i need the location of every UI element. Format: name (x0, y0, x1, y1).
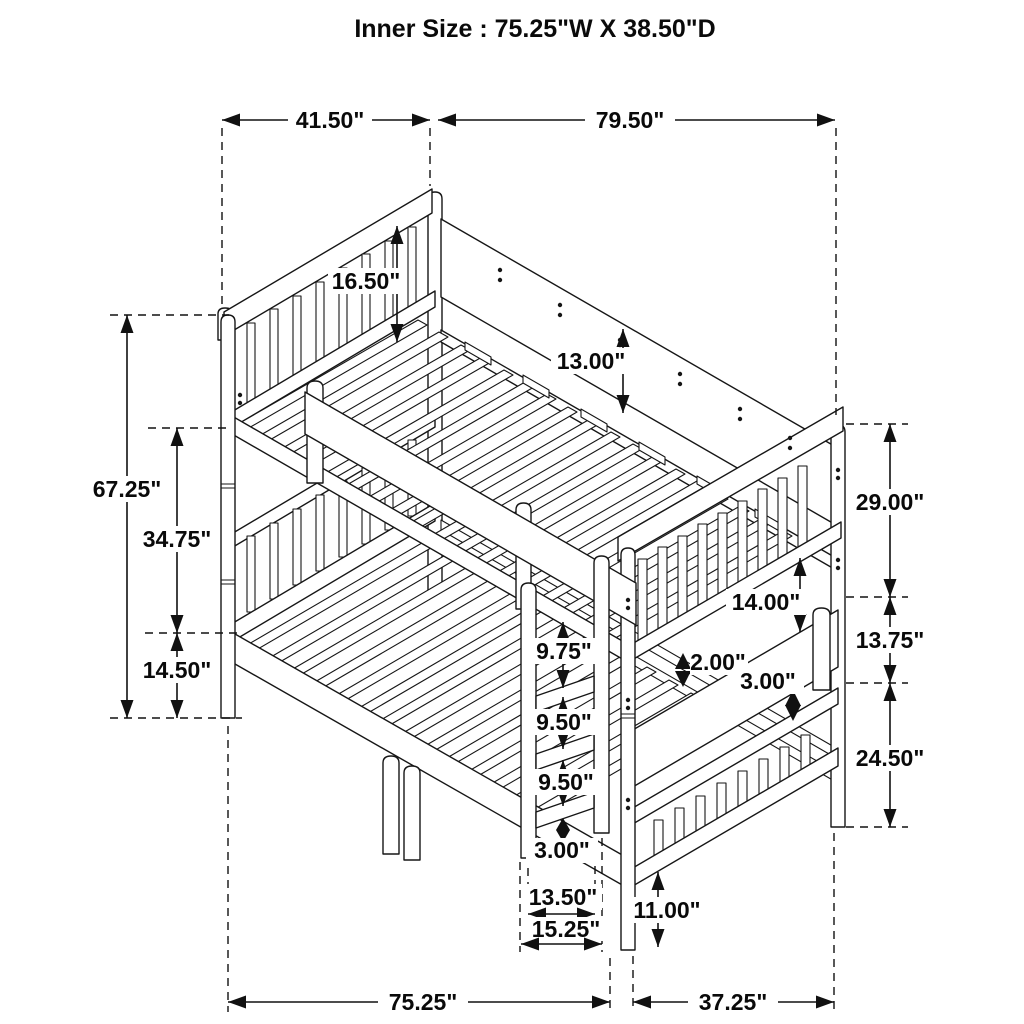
dim-label: 79.50" (596, 107, 664, 133)
bunk-bed-dimension-diagram: 41.50" 79.50" 67.25" 34.75" 14.50" (0, 0, 1024, 1024)
dim-label: 16.50" (332, 268, 400, 294)
bunk-bed-drawing (218, 189, 845, 950)
dim-label: 15.25" (532, 916, 600, 942)
dim-floor-clearance: 11.00" (630, 872, 708, 947)
dim-ladder-outer-width: 15.25" (521, 916, 605, 944)
dim-label: 9.50" (538, 769, 594, 795)
dim-foot-mid-section: 13.75" (846, 597, 934, 683)
dim-label: 13.00" (557, 348, 625, 374)
dim-overall-length-bottom: 75.25" (228, 989, 610, 1015)
lower-guard-support-b (404, 766, 420, 860)
dim-label: 3.00" (534, 837, 590, 863)
dim-label: 37.25" (699, 989, 767, 1015)
dim-label: 24.50" (856, 745, 924, 771)
dim-label: 75.25" (389, 989, 457, 1015)
head-near-post (221, 315, 235, 718)
diagram-title: Inner Size : 75.25"W X 38.50"D (354, 15, 715, 43)
dim-label: 29.00" (856, 489, 924, 515)
dim-label: 14.50" (143, 657, 211, 683)
dim-overall-width-top: 41.50" (222, 107, 430, 133)
dim-label: 11.00" (633, 897, 700, 923)
dim-upper-rail-height: 34.75" (135, 428, 219, 633)
dim-label: 3.00" (740, 668, 796, 694)
dim-label: 41.50" (296, 107, 364, 133)
dim-label: 14.00" (732, 589, 800, 615)
dim-lower-rail-height: 14.50" (135, 633, 219, 718)
dim-label: 13.75" (856, 627, 924, 653)
dim-label: 9.75" (536, 638, 592, 664)
dim-overall-length-top: 79.50" (438, 107, 835, 133)
dim-ladder-inner-width: 13.50" (524, 884, 602, 914)
dim-label: 13.50" (529, 884, 597, 910)
diagram-canvas: 41.50" 79.50" 67.25" 34.75" 14.50" (0, 0, 1024, 1024)
headboard-upper (218, 189, 435, 430)
dim-label: 34.75" (143, 526, 211, 552)
dim-foot-top-section: 29.00" (846, 424, 934, 597)
dim-label: 67.25" (93, 476, 161, 502)
dim-overall-depth-bottom: 37.25" (633, 989, 834, 1015)
lower-guard-support-a (383, 756, 399, 854)
dim-label: 9.50" (536, 709, 592, 735)
dim-foot-bottom-section: 24.50" (846, 683, 934, 827)
